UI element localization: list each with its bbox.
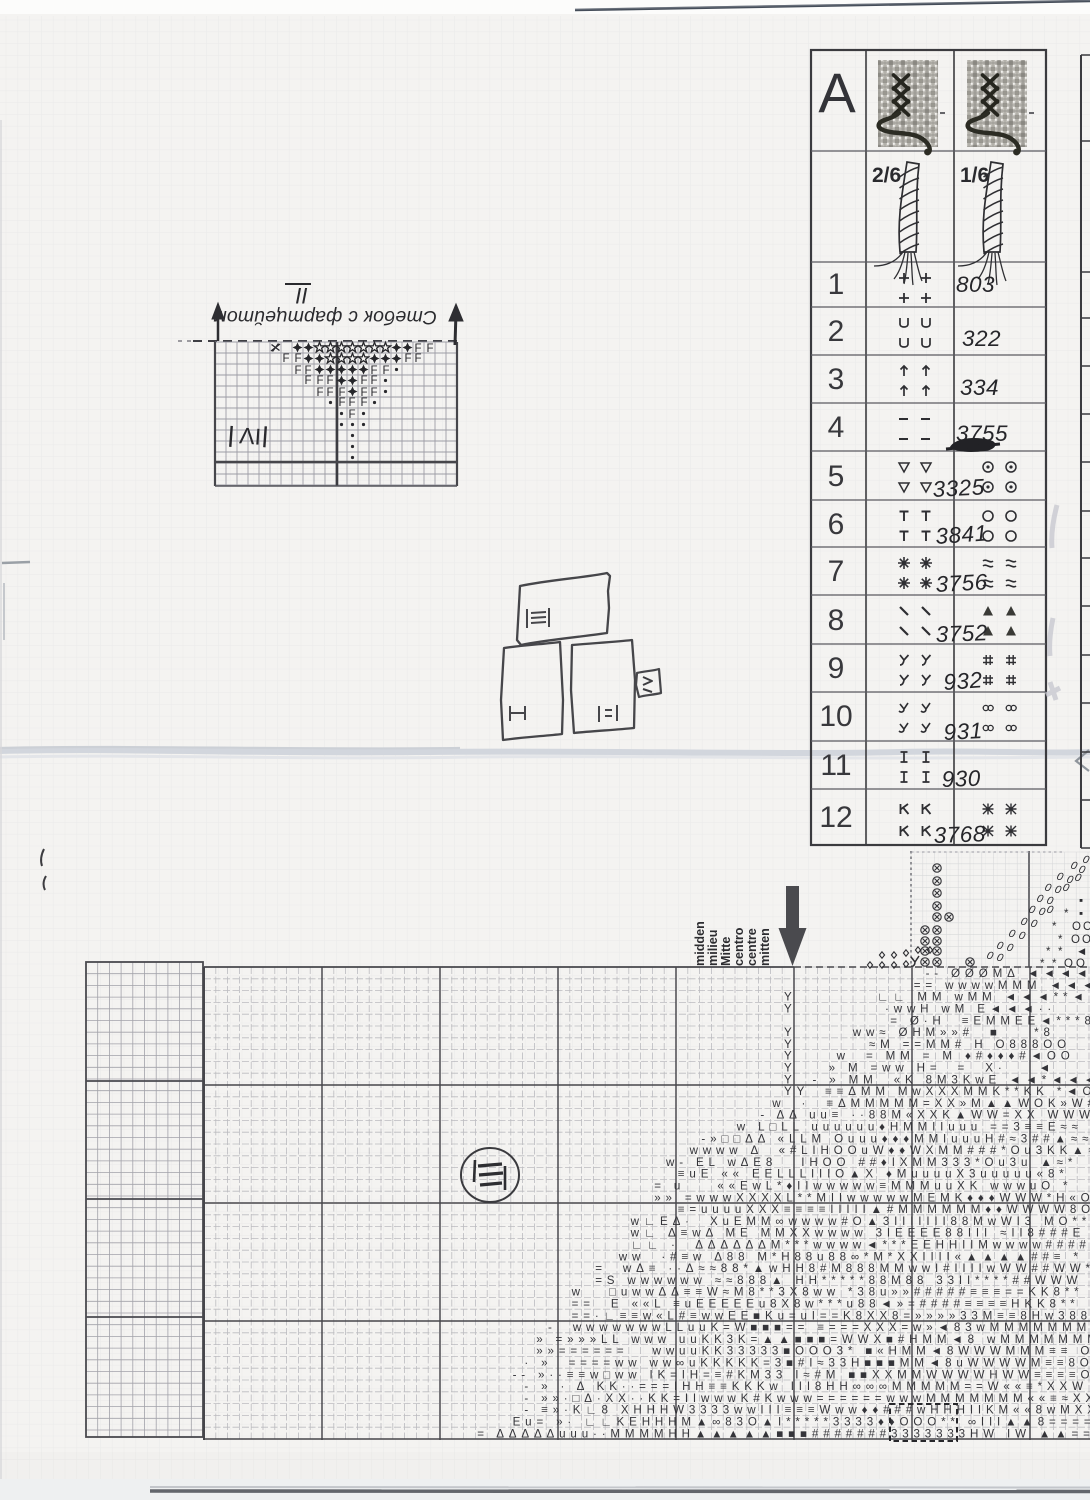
svg-text:II: II: [296, 283, 308, 308]
svg-text:2: 2: [828, 315, 845, 348]
svg-text:3841: 3841: [935, 520, 989, 549]
svg-text:Mitte: Mitte: [719, 937, 733, 966]
svg-text:F: F: [360, 397, 367, 409]
svg-text:F: F: [360, 375, 367, 387]
svg-text:3: 3: [828, 363, 845, 396]
svg-text:milieu: milieu: [706, 930, 720, 966]
svg-text:F: F: [316, 375, 323, 387]
svg-text:IV: IV: [238, 422, 262, 449]
svg-text:O: O: [1071, 934, 1080, 946]
svg-text:803: 803: [956, 272, 995, 297]
svg-text:F: F: [338, 397, 345, 409]
svg-text:F: F: [404, 353, 411, 365]
svg-text:3325: 3325: [932, 474, 985, 502]
svg-text:mitten: mitten: [758, 928, 772, 966]
svg-text:centro: centro: [732, 927, 746, 966]
svg-text:2/6: 2/6: [872, 164, 901, 187]
svg-text:F: F: [370, 387, 377, 399]
svg-text:930: 930: [941, 766, 981, 792]
svg-text:*: *: [1058, 934, 1063, 946]
svg-text:Стебок с фартцейтом: Стебок с фартцейтом: [213, 306, 437, 328]
svg-text:F: F: [304, 375, 311, 387]
svg-text:3756: 3756: [935, 569, 988, 597]
svg-text:4: 4: [828, 411, 845, 444]
svg-text:8: 8: [828, 604, 845, 637]
svg-text:1: 1: [828, 268, 845, 301]
svg-text:*: *: [1046, 946, 1051, 958]
svg-text:F: F: [370, 375, 377, 387]
svg-text:322: 322: [962, 326, 1001, 351]
svg-text:7: 7: [828, 555, 845, 588]
svg-text:F: F: [294, 353, 301, 365]
svg-text:3768: 3768: [933, 821, 986, 848]
svg-text:F: F: [316, 387, 323, 399]
svg-text:F: F: [348, 409, 355, 421]
svg-text:3752: 3752: [935, 620, 988, 647]
svg-text:F: F: [326, 387, 333, 399]
svg-text:F: F: [294, 365, 301, 377]
svg-text:A: A: [818, 61, 856, 124]
svg-text:6: 6: [828, 508, 845, 541]
svg-text:▪: ▪: [1079, 908, 1083, 920]
svg-text:932: 932: [943, 667, 984, 695]
svg-text:5: 5: [828, 460, 845, 493]
svg-text:O: O: [1072, 921, 1081, 933]
svg-text:O: O: [1082, 934, 1090, 946]
svg-text:◄: ◄: [1076, 946, 1087, 958]
svg-text:*: *: [1058, 946, 1063, 958]
svg-text:F: F: [426, 343, 433, 355]
svg-text:9: 9: [828, 652, 845, 685]
svg-text:12: 12: [819, 801, 852, 834]
svg-text:▪: ▪: [1079, 895, 1083, 907]
svg-text:931: 931: [943, 718, 983, 745]
svg-text:11: 11: [820, 749, 851, 782]
svg-text:O: O: [1083, 921, 1090, 933]
svg-text:F: F: [382, 365, 389, 377]
svg-text:F: F: [282, 353, 289, 365]
svg-text:*: *: [1064, 908, 1069, 920]
svg-text:*: *: [1052, 921, 1057, 933]
svg-text:F: F: [326, 375, 333, 387]
svg-text:334: 334: [960, 375, 999, 400]
svg-text:= ΔΔΔΔΔuuu··MMMMHH▲▲▲▲▲■■■####: = ΔΔΔΔΔuuu··MMMMHH▲▲▲▲▲■■■#######3333333…: [477, 1427, 1090, 1440]
svg-text:midden: midden: [693, 921, 707, 966]
svg-text:F: F: [414, 353, 421, 365]
svg-text:10: 10: [819, 700, 852, 733]
svg-text:centre: centre: [745, 928, 759, 966]
svg-text:F: F: [348, 397, 355, 409]
